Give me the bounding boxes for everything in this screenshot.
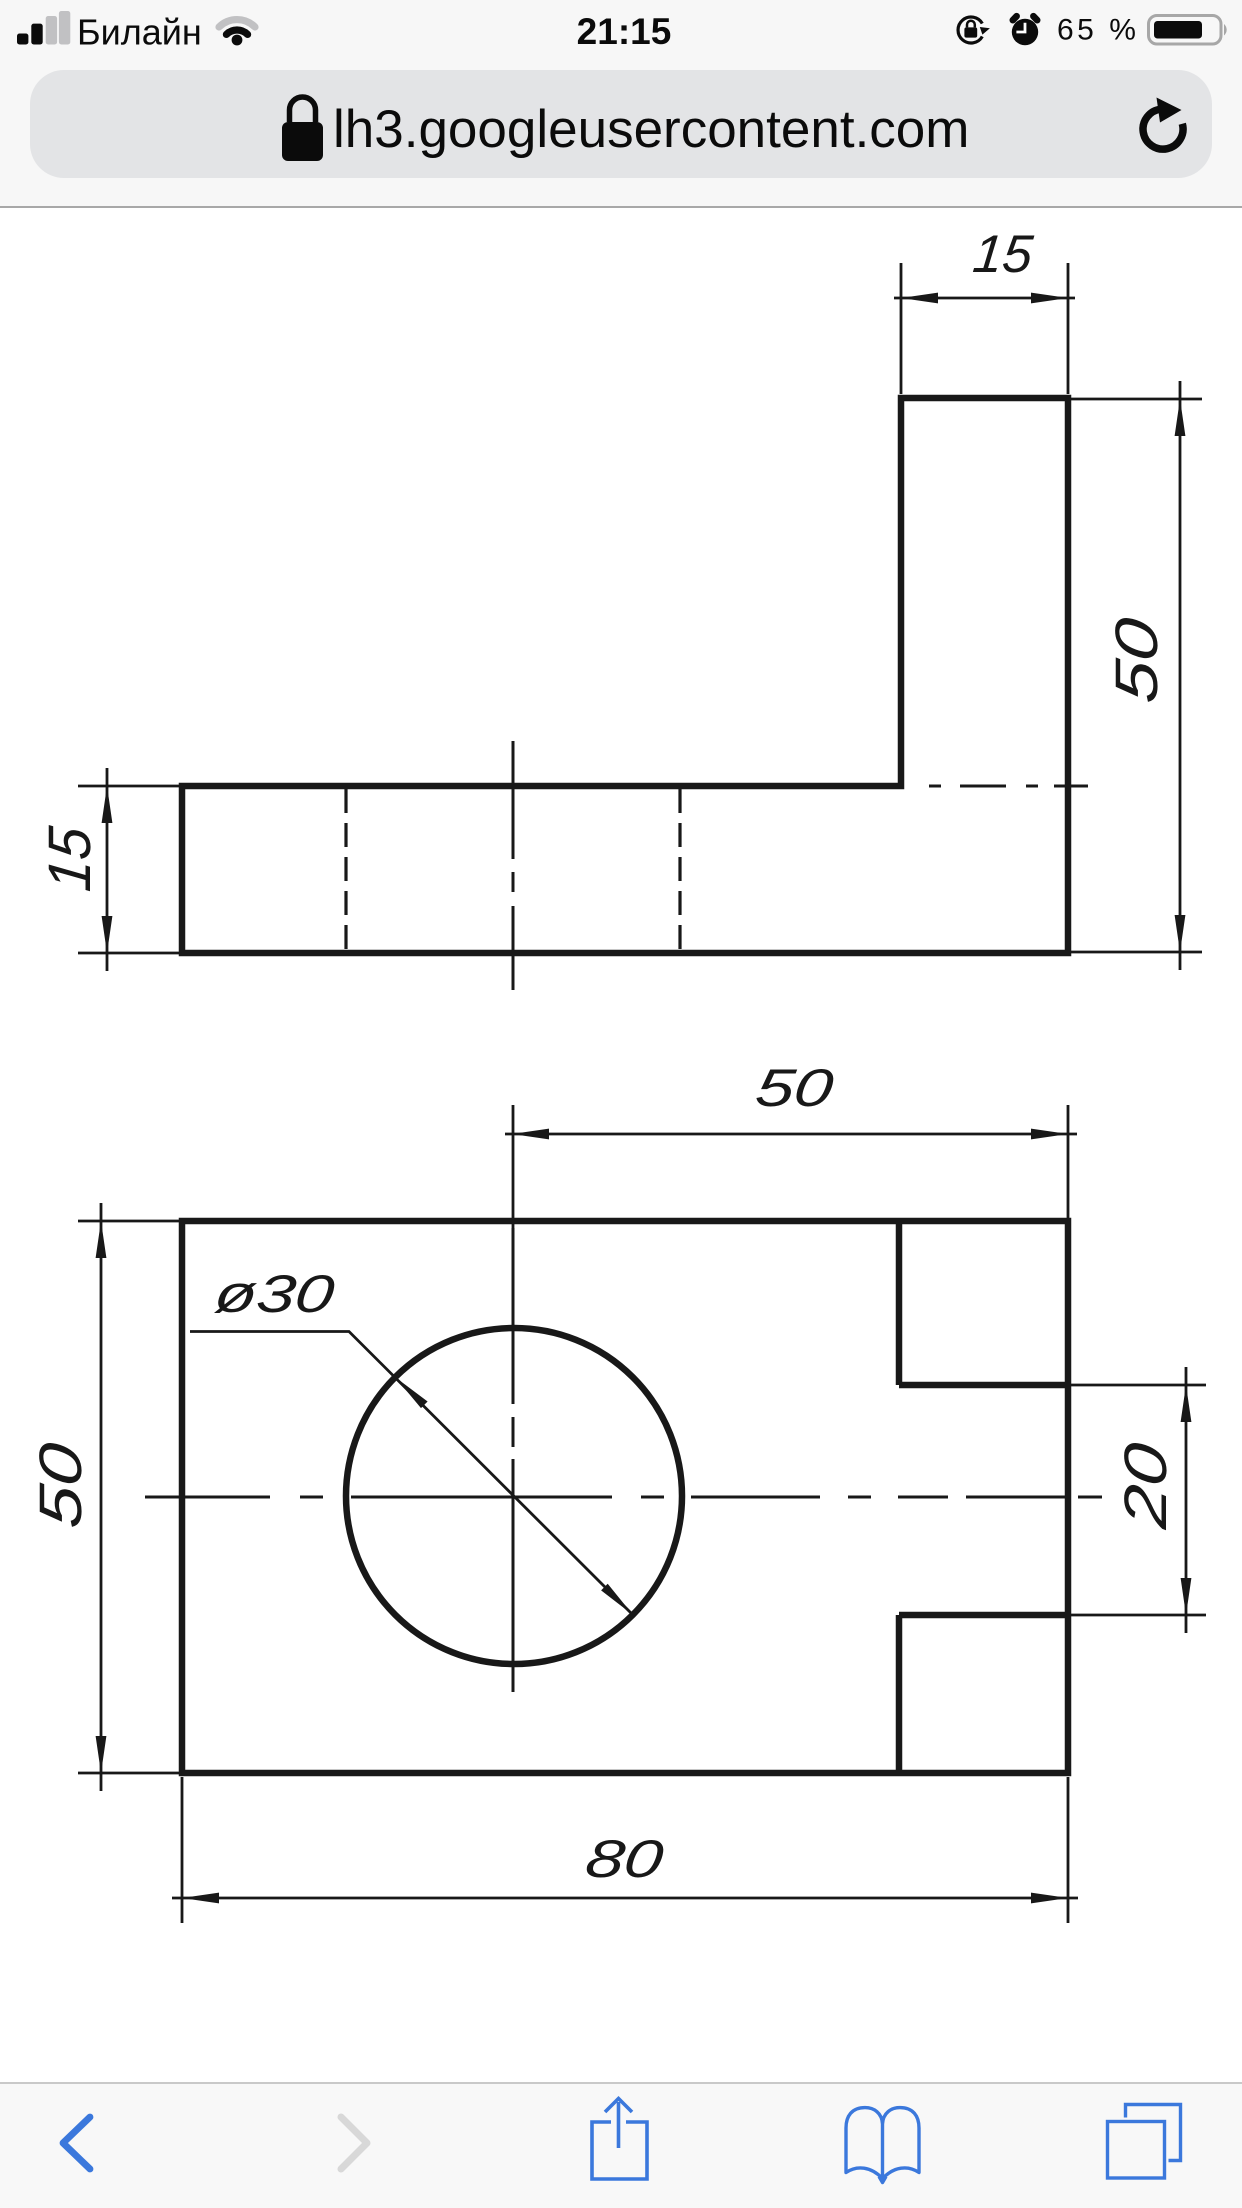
svg-text:50: 50 bbox=[27, 1439, 94, 1531]
svg-text:50: 50 bbox=[752, 1059, 837, 1118]
svg-text:ø30: ø30 bbox=[211, 1265, 338, 1324]
svg-text:50: 50 bbox=[1103, 614, 1170, 706]
svg-text:Билайн: Билайн bbox=[77, 12, 202, 53]
svg-text:lh3.googleusercontent.com: lh3.googleusercontent.com bbox=[333, 100, 969, 159]
svg-text:15: 15 bbox=[970, 225, 1036, 284]
svg-text:21:15: 21:15 bbox=[577, 11, 672, 52]
svg-text:80: 80 bbox=[582, 1830, 667, 1889]
svg-text:20: 20 bbox=[1112, 1439, 1179, 1532]
svg-text:15: 15 bbox=[37, 824, 103, 894]
svg-text:65 %: 65 % bbox=[1057, 14, 1139, 47]
